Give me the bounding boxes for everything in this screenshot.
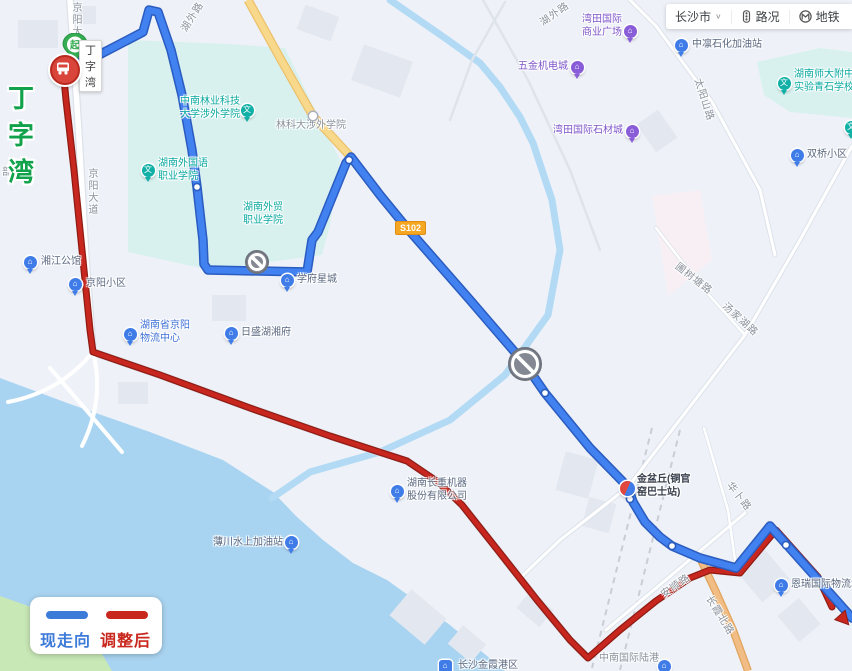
metro-toggle[interactable]: 地铁: [790, 4, 849, 29]
route-stop-dot: [668, 542, 675, 549]
prohibition-icon: [246, 251, 268, 273]
route-stop-dot: [541, 389, 548, 396]
building-icon: ⌂: [391, 485, 404, 498]
route-stop-dot: [782, 541, 789, 548]
poi-pin-purple[interactable]: ⌂: [624, 25, 637, 38]
traffic-toggle[interactable]: 路况: [732, 4, 789, 29]
route-stop-dot: [345, 156, 352, 163]
building-icon: ⌂: [571, 61, 584, 74]
poi-pin-stop[interactable]: [309, 112, 317, 120]
poi-label: 湾田国际石材城: [553, 124, 623, 137]
road-name-label: 京阳大道: [84, 168, 99, 216]
building-icon: ⌂: [124, 328, 137, 341]
map-canvas[interactable]: 京阳大道京阳大道湖外路湖外路太阳山路圃树塘路汤家湖路华卜路安顺路长霞北路部湾 文…: [0, 0, 852, 671]
poi-label: 长沙金霞港区: [458, 659, 518, 671]
poi-label: 双桥小区: [807, 148, 847, 161]
building-icon: ⌂: [624, 25, 637, 38]
building-icon: ⌂: [69, 278, 82, 291]
bus-station-marker[interactable]: [50, 55, 80, 85]
poi-label: 薄川水上加油站: [213, 536, 283, 549]
school-icon: 文: [241, 104, 254, 117]
start-station-tooltip[interactable]: 丁字湾: [79, 40, 102, 92]
poi-pin-teal[interactable]: 文: [845, 121, 852, 134]
poi-pin-blue[interactable]: ⌂: [69, 278, 82, 291]
poi-pin-purple[interactable]: ⌂: [571, 61, 584, 74]
bus-icon: [52, 57, 74, 79]
route-stop-dot: [626, 495, 633, 502]
road-number-badge: S102: [395, 221, 426, 235]
route-stop-dot: [193, 183, 200, 190]
terminus-station-name: 丁字湾: [8, 78, 37, 189]
poi-pin-blue[interactable]: ⌂: [658, 660, 671, 671]
poi-pin-busstop[interactable]: [620, 481, 635, 496]
school-icon: 文: [845, 121, 852, 134]
route-legend: 现走向 调整后: [30, 597, 162, 654]
poi-label: 金盆丘(铜官窑巴士站): [637, 473, 690, 499]
building-icon: ⌂: [626, 125, 639, 138]
city-selector[interactable]: 长沙市 ∨: [666, 4, 731, 29]
city-name: 长沙市: [675, 8, 711, 25]
poi-pin-blue[interactable]: ⌂: [24, 256, 37, 269]
poi-label: 湖南外国语职业学院: [158, 157, 208, 183]
legend-current-swatch: [46, 611, 88, 619]
building-icon: ⌂: [285, 536, 298, 549]
building-icon: ⌂: [675, 39, 688, 52]
poi-pin-blue[interactable]: ⌂: [124, 328, 137, 341]
poi-label: 日盛湖湘府: [241, 326, 291, 339]
poi-pin-blue[interactable]: ⌂: [281, 274, 294, 287]
campus-area: [128, 40, 340, 270]
poi-pin-blue[interactable]: ⌂: [225, 327, 238, 340]
poi-label: 学府星城: [297, 273, 337, 286]
building-icon: ⌂: [775, 579, 788, 592]
poi-label: 京阳小区: [86, 277, 126, 290]
poi-pin-purple[interactable]: ⌂: [626, 125, 639, 138]
chevron-down-icon: ∨: [715, 12, 722, 21]
school-icon: 文: [778, 77, 791, 90]
building-icon: ⌂: [439, 660, 452, 671]
poi-label: 湖南外贸职业学院: [240, 201, 286, 227]
poi-pin-teal[interactable]: 文: [241, 104, 254, 117]
building-icon: ⌂: [791, 149, 804, 162]
poi-pin-blue[interactable]: ⌂: [791, 149, 804, 162]
poi-label: 中凛石化加油站: [692, 38, 762, 51]
poi-label: 湖南师大附中实验青石学校: [794, 68, 852, 94]
building-icon: ⌂: [24, 256, 37, 269]
poi-pin-square[interactable]: ⌂: [439, 660, 452, 671]
poi-pin-blue[interactable]: ⌂: [775, 579, 788, 592]
poi-label: 恩瑞国际物流城: [791, 578, 852, 591]
legend-adjusted-label: 调整后: [100, 627, 151, 651]
poi-pin-teal[interactable]: 文: [778, 77, 791, 90]
building-icon: ⌂: [281, 274, 294, 287]
poi-label: 中南国际陆港: [599, 652, 659, 665]
building-icon: ⌂: [658, 660, 671, 671]
poi-label: 湘江公馆: [41, 255, 81, 268]
poi-label: 湾田国际商业广场: [578, 13, 622, 39]
traffic-light-icon: [741, 10, 752, 23]
map-toolbar: 长沙市 ∨ 路况 地铁: [666, 4, 852, 29]
poi-pin-teal[interactable]: 文: [142, 164, 155, 177]
poi-label: 中南林业科技大学涉外学院: [180, 95, 240, 121]
traffic-label: 路况: [756, 8, 780, 25]
building-icon: ⌂: [225, 327, 238, 340]
poi-pin-blue[interactable]: ⌂: [391, 485, 404, 498]
metro-icon: [799, 10, 812, 23]
poi-label: 林科大涉外学院: [276, 119, 346, 132]
poi-label: 湖南省京阳物流中心: [140, 319, 190, 345]
poi-label: 五金机电城: [518, 60, 568, 73]
prohibition-icon: [509, 348, 541, 380]
legend-current-label: 现走向: [40, 627, 91, 651]
poi-label: 湖南长重机器股份有限公司: [407, 477, 467, 503]
school-icon: 文: [142, 164, 155, 177]
metro-label: 地铁: [816, 8, 840, 25]
poi-pin-blue[interactable]: ⌂: [285, 536, 298, 549]
legend-adjusted-swatch: [106, 611, 148, 619]
poi-pin-blue[interactable]: ⌂: [675, 39, 688, 52]
